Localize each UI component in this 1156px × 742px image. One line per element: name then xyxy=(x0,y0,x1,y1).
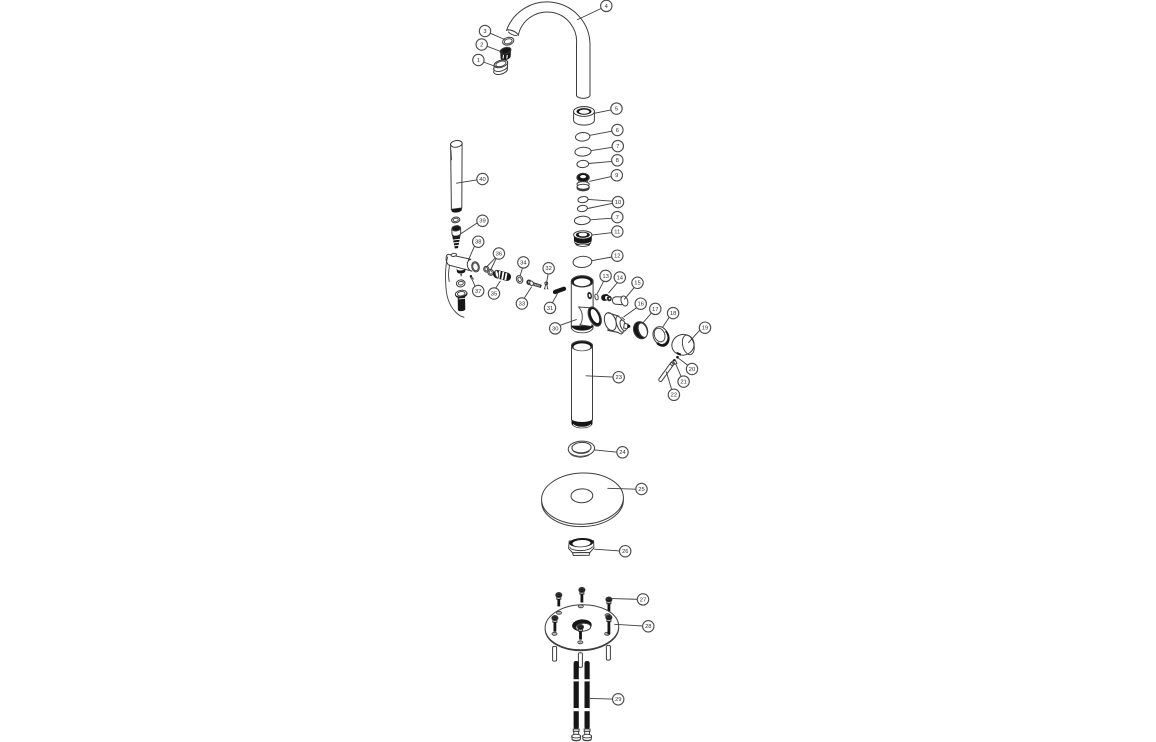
svg-text:1: 1 xyxy=(477,58,480,64)
svg-text:19: 19 xyxy=(702,326,708,332)
svg-text:28: 28 xyxy=(645,624,651,630)
svg-text:29: 29 xyxy=(615,697,621,703)
svg-text:16: 16 xyxy=(637,302,643,308)
svg-text:2: 2 xyxy=(480,42,483,48)
svg-text:34: 34 xyxy=(520,260,527,266)
svg-text:17: 17 xyxy=(652,307,658,313)
svg-text:26: 26 xyxy=(622,549,628,555)
svg-text:36: 36 xyxy=(496,251,502,257)
svg-text:6: 6 xyxy=(616,128,619,134)
svg-text:35: 35 xyxy=(491,291,497,297)
svg-text:7: 7 xyxy=(616,144,619,150)
svg-text:11: 11 xyxy=(614,229,620,235)
svg-text:15: 15 xyxy=(634,281,640,287)
svg-text:10: 10 xyxy=(615,200,621,206)
svg-text:27: 27 xyxy=(640,597,646,603)
svg-text:14: 14 xyxy=(617,275,624,281)
svg-text:30: 30 xyxy=(552,326,558,332)
svg-text:3: 3 xyxy=(483,29,486,35)
svg-text:5: 5 xyxy=(615,107,618,113)
svg-text:22: 22 xyxy=(671,393,677,399)
svg-text:23: 23 xyxy=(615,375,621,381)
svg-text:25: 25 xyxy=(638,487,644,493)
svg-text:7: 7 xyxy=(616,215,619,221)
svg-text:37: 37 xyxy=(475,289,481,295)
svg-text:38: 38 xyxy=(475,240,481,246)
svg-text:12: 12 xyxy=(614,254,620,260)
svg-text:31: 31 xyxy=(547,306,553,312)
svg-text:33: 33 xyxy=(519,301,525,307)
svg-text:13: 13 xyxy=(602,274,608,280)
svg-text:40: 40 xyxy=(479,177,485,183)
svg-text:9: 9 xyxy=(615,173,618,179)
svg-text:21: 21 xyxy=(680,380,686,386)
svg-text:8: 8 xyxy=(616,158,619,164)
svg-text:20: 20 xyxy=(689,367,695,373)
svg-text:24: 24 xyxy=(619,450,626,456)
svg-text:18: 18 xyxy=(670,311,676,317)
svg-text:32: 32 xyxy=(545,266,551,272)
svg-text:39: 39 xyxy=(479,219,485,225)
